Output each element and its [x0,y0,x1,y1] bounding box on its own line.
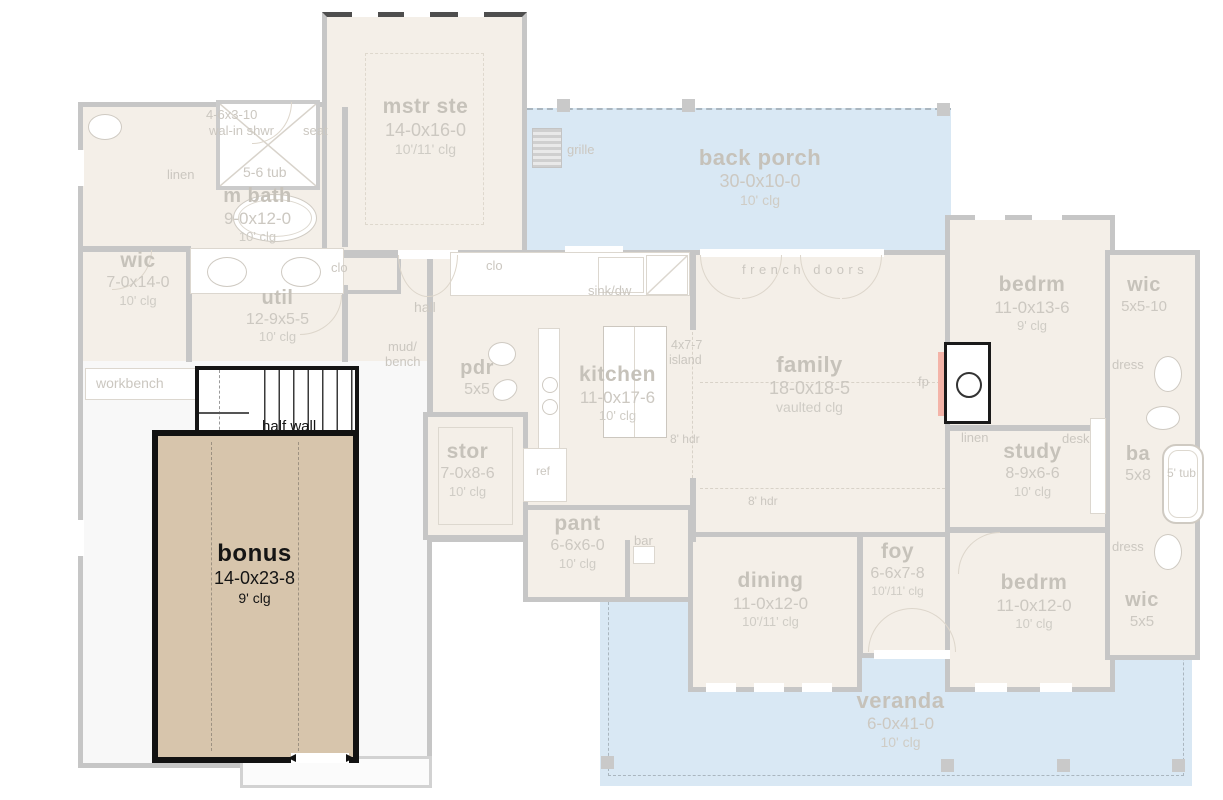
label-dress: dress [1112,539,1144,554]
label-hall: hall [414,299,436,315]
window-arrow [346,754,354,762]
label-clo: clo [486,258,503,273]
porch-post [1057,759,1070,772]
label-seat: seat [303,123,328,138]
window [754,683,784,692]
window [1040,683,1072,692]
room-label-stor: stor 7-0x8-6 10' clg [415,440,520,499]
label-island-dims: 4x7-7 [671,338,702,352]
label-tub-5: 5' tub [1167,466,1196,480]
label-desk: desk [1062,431,1089,446]
vanity-sink [207,257,247,287]
dress-sink [1154,534,1182,570]
room-label-pdr: pdr 5x5 [437,357,517,399]
label-sink-dw: sink/dw [588,283,631,298]
label-half-wall: half wall [262,418,316,435]
label-linen: linen [167,167,194,182]
label-shower: wal-in shwr [209,123,274,138]
label-ref: ref [536,464,550,478]
porch-post [941,759,954,772]
vanity-sink [281,257,321,287]
room-label-bedrm-bot: bedrm 11-0x12-0 10' clg [963,571,1105,631]
window [75,520,84,556]
label-tub-56: 5-6 tub [243,164,287,180]
window-arrow [288,754,296,762]
grille [532,128,562,168]
window [975,211,1005,220]
room-label-bonus: bonus 14-0x23-8 9' clg [182,540,327,606]
fireplace [944,342,991,424]
porch-post [601,756,614,769]
label-dress: dress [1112,357,1144,372]
floor-plan: mstr ste 14-0x16-0 10'/11' clg back porc… [0,0,1223,800]
label-linen: linen [961,430,988,445]
dishwasher [646,255,688,295]
toilet [88,114,122,140]
label-clo: clo [331,260,348,275]
header-line [700,488,945,489]
dress-sink [1154,356,1182,392]
toilet [1146,406,1180,430]
window [1032,211,1062,220]
label-grille: grille [567,142,594,157]
room-label-study: study 8-9x6-6 10' clg [970,440,1095,499]
room-label-m-bath: m bath 9-0x12-0 10' clg [200,185,315,244]
label-french-doors: french doors [742,262,868,277]
room-label-bedrm-top: bedrm 11-0x13-6 9' clg [962,273,1102,333]
porch-post [557,99,570,112]
room-label-back-porch: back porch 30-0x10-0 10' clg [655,145,865,209]
label-bench: bench [385,354,420,369]
room-label-family: family 18-0x18-5 vaulted clg [737,352,882,416]
room-label-wic-br: wic 5x5 [1106,589,1178,630]
label-mud: mud/ [388,339,417,354]
wall [948,527,1110,533]
label-bar: bar [634,533,653,548]
window [352,8,378,17]
room-label-kitchen: kitchen 11-0x17-6 10' clg [550,363,685,423]
room-label-ba: ba 5x8 [1107,443,1169,485]
label-fp: fp [918,374,929,389]
label-shower-dims: 4-6x3-10 [206,107,257,122]
bar-sink [633,546,655,564]
fireplace-flue [956,372,982,398]
room-label-wic-tr: wic 5x5-10 [1103,274,1185,315]
label-workbench: workbench [96,375,164,391]
room-label-mstr-ste: mstr ste 14-0x16-0 10'/11' clg [338,95,513,158]
label-hdr: 8' hdr [670,432,700,446]
porch-post [1172,759,1185,772]
porch-post [682,99,695,112]
window [404,8,430,17]
room-label-dining: dining 11-0x12-0 10'/11' clg [698,569,843,629]
wall [690,252,696,330]
wall [342,285,348,362]
window [706,683,736,692]
room-label-veranda: veranda 6-0x41-0 10' clg [818,688,983,751]
room-label-foy: foy 6-6x7-8 10'/11' clg [845,540,950,598]
window [458,8,484,17]
wall [690,478,696,542]
label-hdr: 8' hdr [748,494,778,508]
window [291,753,349,763]
porch-post [937,103,950,116]
room-label-wic-left: wic 7-0x14-0 10' clg [88,249,188,308]
room-label-util: util 12-9x5-5 10' clg [225,287,330,345]
label-island: island [669,353,702,367]
window [75,150,84,186]
room-label-pant: pant 6-6x6-0 10' clg [525,512,630,571]
